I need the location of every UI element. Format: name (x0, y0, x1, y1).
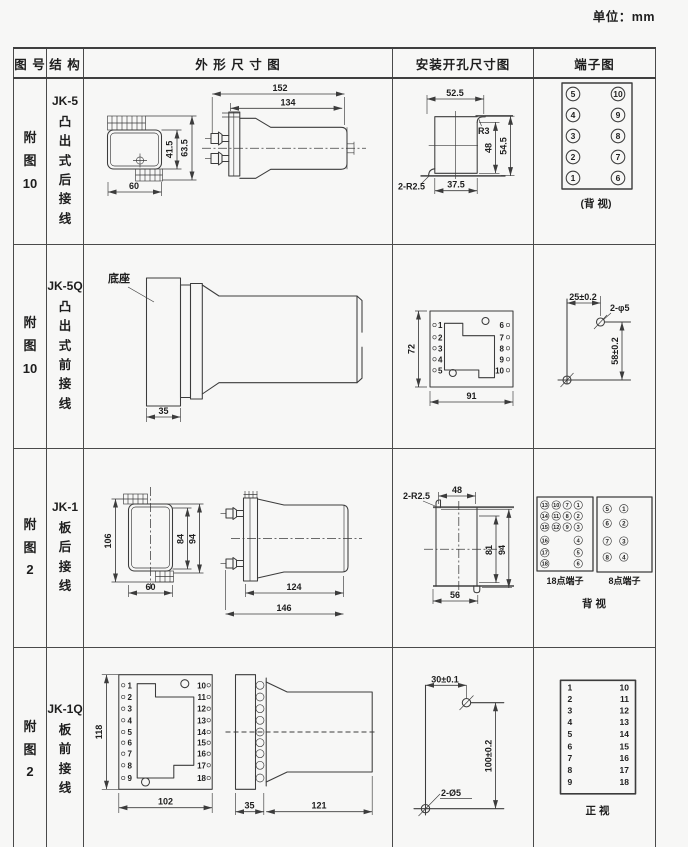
terminal-number: 3 (128, 705, 133, 714)
drill-dims: 25±0.2 2-φ5 58±0.2 (567, 292, 629, 380)
dim-84: 84 (176, 534, 186, 544)
terminal-number: 5 (605, 506, 609, 513)
terminal-number: 4 (577, 538, 581, 544)
structure-jk1q: JK-1Q 板 前 接 线 (47, 648, 84, 847)
mounting-drawing-jk5q-cell: 1 2 3 4 5 6 7 8 9 10 (393, 245, 534, 449)
terminal-number: 4 (571, 110, 576, 120)
terminal-stud (221, 558, 244, 570)
hole-number: 4 (438, 355, 443, 364)
dim-94: 94 (497, 545, 507, 555)
mounting-drawing-jk1q-cell: 30±0.1 100±0.2 2-Ø5 (393, 648, 534, 847)
jk5-terminal-diagram: 5 4 3 2 1 10 9 8 7 6 (背 视) (534, 79, 656, 244)
terminal-number: 7 (566, 503, 569, 509)
header-mounting: 安装开孔尺寸图 (393, 48, 534, 78)
terminal-number: 17 (620, 765, 630, 775)
front-terminals-right: 10 11 12 13 14 15 16 17 18 (197, 681, 210, 783)
terminal-block-8: 5 6 7 8 1 2 3 4 (603, 505, 628, 562)
dim-30: 30±0.1 (431, 674, 458, 684)
terminal-number: 3 (622, 538, 626, 545)
header-terminal: 端子图 (534, 48, 656, 78)
jk5-mounting-drawing: 52.5 R3 48 54.5 37.5 2-R2.5 (393, 79, 534, 244)
terminal-number: 6 (605, 521, 609, 528)
view-caption: 正 视 (586, 804, 610, 817)
terminal-number: 10 (553, 503, 559, 509)
jk5-side-dims: 152 134 (212, 83, 344, 133)
dim-2-phi5: 2-Ø5 (441, 788, 461, 798)
jk1-front-dims: 106 84 94 60 (103, 499, 204, 597)
dim-25: 25±0.2 (569, 292, 596, 302)
outline-drawing-jk5-cell: 60 41.5 63.5 (84, 78, 393, 245)
terminal-number: 5 (577, 551, 580, 557)
outline-drawing-jk1-cell: 106 84 94 60 (84, 449, 393, 648)
terminal-number: 8 (605, 554, 609, 561)
header-fig: 图 号 (14, 48, 47, 78)
terminal-number: 13 (542, 503, 548, 509)
dim-94: 94 (188, 534, 198, 544)
dim-2-phi5: 2-φ5 (610, 303, 629, 313)
jk5-cutout-dims: 52.5 R3 48 54.5 37.5 2-R2.5 (398, 88, 515, 194)
jk5q-side-view (147, 278, 363, 406)
fig-number-jk1: 附 图 2 (14, 449, 47, 648)
jk1-side-view (221, 491, 363, 581)
dim-35: 35 (158, 406, 168, 416)
terminal-number: 17 (197, 761, 206, 770)
dim-48: 48 (484, 143, 494, 153)
terminal-number: 14 (542, 514, 549, 520)
terminal-number: 4 (622, 554, 626, 561)
table-row: 附 图 2 JK-1Q 板 前 接 线 1 (14, 648, 656, 847)
terminal-number: 3 (571, 131, 576, 141)
dim-91: 91 (466, 391, 476, 401)
terminal-number: 16 (197, 750, 206, 759)
dim-63-5: 63.5 (180, 139, 190, 157)
terminal-stud (221, 508, 244, 520)
view-caption: (背 视) (581, 197, 612, 210)
terminal-number: 7 (605, 538, 609, 545)
table-row: 附 图 10 JK-5Q 凸 出 式 前 接 线 底座 (14, 245, 656, 449)
jk1q-side-view (226, 675, 378, 790)
terminal-number: 12 (197, 705, 206, 714)
terminal-number: 12 (620, 706, 630, 716)
terminal-number: 5 (128, 728, 133, 737)
dim-60: 60 (129, 181, 139, 191)
jk5-front-dims: 60 41.5 63.5 (108, 116, 197, 196)
dim-54-5: 54.5 (499, 137, 509, 155)
terminal-number: 15 (197, 739, 206, 748)
terminal-drawing-jk1q-cell: 1 2 3 4 5 6 7 8 9 10 11 12 13 (534, 648, 656, 847)
terminal-number: 3 (577, 525, 580, 531)
model-label: JK-5Q (47, 279, 82, 293)
terminal-number: 1 (128, 681, 133, 690)
terminal-number: 6 (568, 742, 573, 752)
terminal-number: 2 (571, 152, 576, 162)
dim-2-r2-5: 2-R2.5 (403, 491, 430, 501)
dim-102: 102 (158, 797, 173, 807)
dim-2-r2-5: 2-R2.5 (398, 182, 425, 192)
terminal-drawing-jk5q-cell: 25±0.2 2-φ5 58±0.2 (534, 245, 656, 449)
terminal-stud (205, 152, 229, 165)
terminal-number: 12 (553, 525, 559, 531)
terminal-number: 2 (577, 514, 580, 520)
dim-41-5: 41.5 (165, 141, 175, 159)
dimension-table: 图 号 结 构 外 形 尺 寸 图 安装开孔尺寸图 端子图 附 图 10 JK-… (13, 47, 656, 847)
mounting-drawing-jk5-cell: 52.5 R3 48 54.5 37.5 2-R2.5 (393, 78, 534, 245)
terminal-number: 16 (620, 753, 630, 763)
jk5q-outline-drawing: 底座 35 (84, 245, 393, 448)
terminal-number: 11 (553, 514, 559, 520)
jk1-front-view (124, 487, 174, 589)
terminal-number: 16 (542, 538, 548, 544)
dim-r3: R3 (478, 126, 490, 136)
dim-121: 121 (311, 801, 326, 811)
terminal-number: 7 (128, 750, 133, 759)
dim-48: 48 (452, 485, 462, 495)
hole-number: 1 (438, 321, 443, 330)
dim-134: 134 (280, 97, 295, 107)
structure-jk1: JK-1 板 后 接 线 (47, 449, 84, 648)
terminal-number: 14 (197, 728, 206, 737)
terminal-number: 1 (622, 506, 626, 513)
terminal-number: 18 (542, 562, 548, 568)
structure-jk5: JK-5 凸 出 式 后 接 线 (47, 78, 84, 245)
dim-52-5: 52.5 (446, 88, 464, 98)
terminal-number: 6 (616, 173, 621, 183)
dim-81: 81 (484, 545, 494, 555)
jk5-side-view (202, 112, 366, 178)
terminal-number: 2 (568, 694, 573, 704)
datasheet-page: 单位：mm 图 号 结 构 外 形 尺 寸 图 安装开孔尺寸图 端子图 附 图 … (0, 0, 688, 847)
hole-number: 5 (438, 366, 443, 375)
terminal-list-right: 10 11 12 13 14 15 16 17 18 (620, 682, 630, 787)
model-label: JK-1 (52, 500, 78, 514)
terminal-number: 1 (577, 503, 580, 509)
jk1q-terminal-diagram: 1 2 3 4 5 6 7 8 9 10 11 12 13 (534, 648, 656, 847)
terminal-number: 2 (622, 521, 626, 528)
structure-label: 凸 出 式 后 接 线 (59, 113, 72, 229)
fig-number-jk5q: 附 图 10 (14, 245, 47, 449)
drill-dims: 30±0.1 100±0.2 2-Ø5 (426, 674, 496, 808)
terminal-number: 1 (571, 173, 576, 183)
terminal-number: 8 (566, 514, 569, 520)
front-cutout (137, 684, 194, 778)
terminal-number: 10 (197, 681, 206, 690)
terminal-number: 13 (197, 716, 206, 725)
terminal-number: 3 (568, 706, 573, 716)
terminal-number: 7 (616, 152, 621, 162)
structure-label: 板 后 接 线 (59, 519, 72, 597)
terminal-number: 10 (613, 89, 623, 99)
terminal-number: 18 (197, 774, 206, 783)
terminal-number: 15 (620, 742, 630, 752)
terminal-number: 14 (620, 729, 630, 739)
jk1q-mounting-drawing: 30±0.1 100±0.2 2-Ø5 (393, 648, 534, 847)
base-label: 底座 (108, 271, 130, 285)
unit-label: 单位：mm (593, 6, 655, 25)
terminal-number: 18 (620, 777, 630, 787)
hole-number: 7 (500, 333, 505, 342)
hole-number: 8 (500, 344, 505, 353)
jk5q-drilling-diagram: 25±0.2 2-φ5 58±0.2 (534, 245, 656, 448)
dim-152: 152 (272, 83, 287, 93)
terminal-number: 9 (128, 774, 133, 783)
hole-number: 6 (500, 321, 505, 330)
view-caption: 背 视 (582, 597, 606, 610)
fig-number-jk1q: 附 图 2 (14, 648, 47, 847)
terminal-18-label: 18点端子 (546, 575, 583, 586)
dim-60: 60 (145, 582, 155, 592)
dim-106: 106 (103, 533, 113, 548)
structure-jk5q: JK-5Q 凸 出 式 前 接 线 (47, 245, 84, 449)
jk1-terminal-diagram: 13 14 15 16 17 18 10 11 12 7 8 9 1 2 (534, 449, 656, 647)
hole-number: 10 (495, 366, 504, 375)
hole-number: 2 (438, 333, 443, 342)
jk5q-panel-dims: 72 91 (407, 311, 514, 406)
terminal-block-18: 13 14 15 16 17 18 10 11 12 7 8 9 1 2 (541, 501, 583, 568)
terminal-number: 17 (542, 551, 548, 557)
terminal-number: 11 (198, 693, 207, 702)
jk5-outline-drawing: 60 41.5 63.5 (84, 79, 393, 244)
dim-124: 124 (286, 582, 301, 592)
terminal-number: 4 (128, 716, 133, 725)
dim-37-5: 37.5 (447, 180, 465, 190)
jk5-front-view (108, 116, 163, 181)
model-label: JK-5 (52, 94, 78, 108)
terminal-number: 9 (566, 525, 569, 531)
terminal-number: 1 (568, 682, 573, 692)
dim-118: 118 (94, 725, 104, 740)
dim-35: 35 (244, 801, 254, 811)
outline-drawing-jk1q-cell: 1 2 3 4 5 6 7 8 9 10 11 12 13 (84, 648, 393, 847)
model-label: JK-1Q (47, 702, 82, 716)
structure-label: 凸 出 式 前 接 线 (59, 298, 72, 414)
terminal-drawing-jk5-cell: 5 4 3 2 1 10 9 8 7 6 (背 视) (534, 78, 656, 245)
terminal-drawing-jk1-cell: 13 14 15 16 17 18 10 11 12 7 8 9 1 2 (534, 449, 656, 648)
terminal-number: 6 (128, 739, 133, 748)
table-row: 附 图 10 JK-5 凸 出 式 后 接 线 (14, 78, 656, 245)
jk1q-front-dims: 118 102 (94, 675, 212, 813)
dim-56: 56 (450, 590, 460, 600)
terminal-number: 7 (568, 753, 573, 763)
jk5q-mounting-drawing: 1 2 3 4 5 6 7 8 9 10 (393, 245, 534, 448)
terminal-list-left: 1 2 3 4 5 6 7 8 9 (568, 682, 573, 787)
hole-number: 3 (438, 344, 443, 353)
dim-72: 72 (407, 344, 417, 354)
terminal-number: 5 (568, 729, 573, 739)
hole-numbers-right: 6 7 8 9 10 (495, 321, 510, 375)
terminal-stud (205, 132, 229, 145)
structure-label: 板 前 接 线 (59, 721, 72, 799)
terminal-circles: 5 4 3 2 1 10 9 8 7 6 (566, 87, 625, 185)
table-header-row: 图 号 结 构 外 形 尺 寸 图 安装开孔尺寸图 端子图 (14, 48, 656, 78)
hole-number: 9 (500, 355, 505, 364)
dim-146: 146 (276, 603, 291, 613)
front-terminals-left: 1 2 3 4 5 6 7 8 9 (122, 681, 133, 783)
terminal-number: 13 (620, 717, 630, 727)
dim-58: 58±0.2 (610, 337, 620, 364)
table-row: 附 图 2 JK-1 板 后 接 线 (14, 449, 656, 648)
dim-100: 100±0.2 (484, 740, 494, 772)
hole-numbers-left: 1 2 3 4 5 (433, 321, 443, 375)
mounting-drawing-jk1-cell: 2-R2.5 48 81 94 56 (393, 449, 534, 648)
terminal-number: 6 (577, 562, 580, 568)
terminal-number: 8 (568, 765, 573, 775)
terminal-number: 10 (620, 682, 630, 692)
header-outline: 外 形 尺 寸 图 (84, 48, 393, 78)
jk5q-dims: 35 (147, 406, 181, 422)
outline-drawing-jk5q-cell: 底座 35 (84, 245, 393, 449)
terminal-number: 8 (128, 761, 133, 770)
fig-number-jk5: 附 图 10 (14, 78, 47, 245)
terminal-number: 11 (620, 694, 629, 704)
jk1-outline-drawing: 106 84 94 60 (84, 449, 393, 647)
terminal-number: 5 (571, 89, 576, 99)
jk1q-outline-drawing: 1 2 3 4 5 6 7 8 9 10 11 12 13 (84, 648, 393, 847)
jk1-mounting-drawing: 2-R2.5 48 81 94 56 (393, 449, 534, 647)
header-struct: 结 构 (47, 48, 84, 78)
terminal-number: 9 (568, 777, 573, 787)
terminal-number: 8 (616, 131, 621, 141)
terminal-8-label: 8点端子 (608, 575, 640, 586)
terminal-number: 9 (616, 110, 621, 120)
terminal-number: 15 (542, 525, 548, 531)
terminal-number: 2 (128, 693, 133, 702)
terminal-number: 4 (568, 717, 573, 727)
